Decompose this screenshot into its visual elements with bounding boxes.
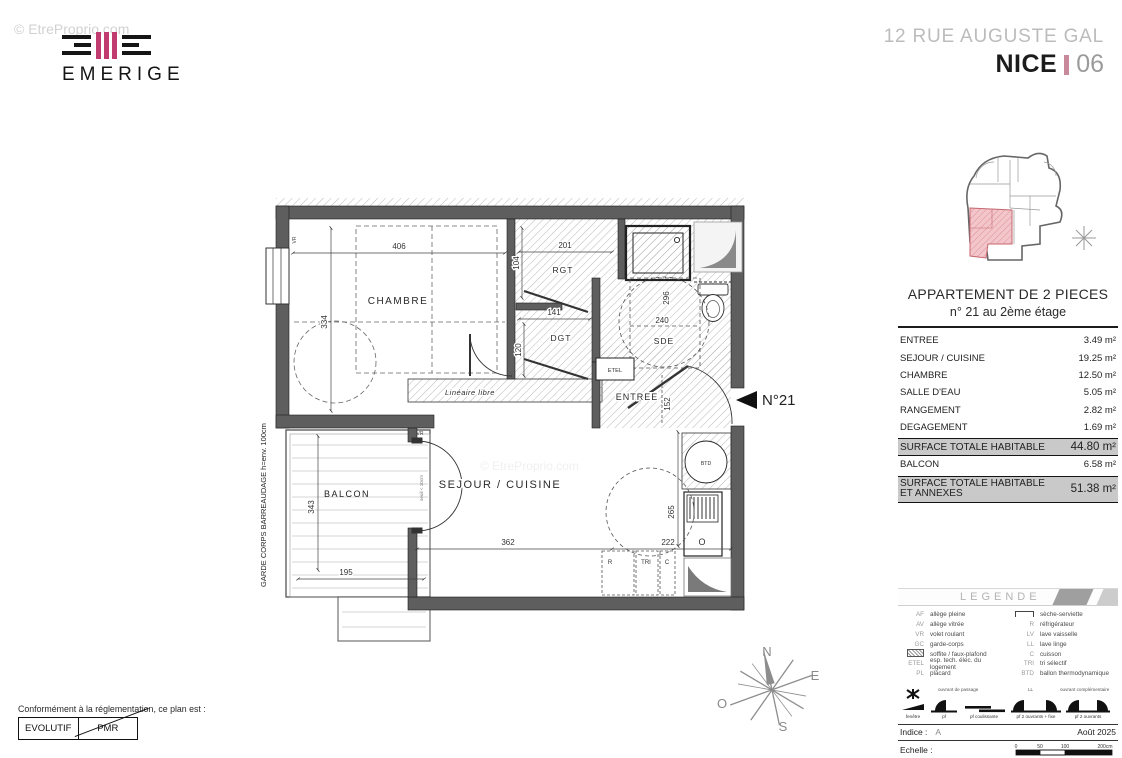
table-row: RANGEMENT2.82 m² [898,402,1118,419]
chambre-furniture [294,226,505,403]
legend-label: tri sélectif [1040,660,1067,667]
window-glyph-icon [900,689,926,713]
balcon-label: BALCON [324,489,370,499]
echelle-label: Echelle : [900,745,933,755]
room-area: 6.58 m² [1084,459,1116,470]
table-row: SALLE D'EAU5.05 m² [898,384,1118,401]
compass-rose: N E S O [717,642,821,734]
seuil-label: seuil < 10cm [419,475,424,501]
dim-label: 343 [307,500,316,514]
legend-item: ETELesp. tech. élec. du logement [898,659,1008,669]
dim-label: 104 [512,256,521,270]
door-glyph-icon [931,697,957,713]
room-area: 12.50 m² [1079,370,1117,381]
dim-label: 296 [662,291,671,305]
evolutif-cell: EVOLUTIF [19,718,78,739]
annotation: ouvrant de passage [938,687,978,692]
total-label: SURFACE TOTALE HABITABLE [900,442,1045,453]
total-label: SURFACE TOTALE HABITABLE ET ANNEXES [900,479,1050,500]
fridge-label: R [608,560,613,566]
sde-label: SDE [654,336,674,346]
pmr-cell-strikethrough: PMR [78,718,138,739]
btd-label: BTD [701,461,712,467]
entry-arrow-icon [736,391,757,409]
soffit-hatch-icon [898,649,930,659]
brand-name: EMERIGE [62,64,166,86]
compass-s: S [779,719,788,734]
legend-title: LEGENDE [960,591,1041,603]
dim-label: 201 [558,241,572,250]
legend-abbr: LV [1008,631,1040,638]
table-row: BALCON6.58 m² [898,456,1118,473]
legend-item: LVlave vaisselle [1008,630,1118,640]
legend-right-column: sèche-serviette Rréfrigérateur LVlave va… [1008,610,1118,679]
kitchen-fixtures: BTD O [684,441,731,596]
legend-abbr: TRI [1008,660,1040,667]
legend-label: placard [930,670,951,677]
emerige-logo-icon [62,30,166,60]
glyph-label: pf 2 ouvrants [1075,714,1102,719]
table-row: ENTREE3.49 m² [898,332,1118,349]
dim-label: 152 [663,397,672,411]
decor-parallelogram [1096,589,1118,605]
apartment-subtitle: n° 21 au 2ème étage [898,305,1118,328]
conformity-options: EVOLUTIF PMR [18,717,138,740]
towel-rail-icon [1008,611,1040,619]
exterior-insulation-hatch [276,198,744,206]
glyph-pf-coulissante: pf coulissante [960,697,1008,719]
lineaire-band-hatch [408,379,602,402]
room-area: 3.49 m² [1084,335,1116,346]
annotation: ouvrant complémentaire [1060,687,1109,692]
legend-item: TRItri sélectif [1008,659,1118,669]
legend-abbr: LL [1008,641,1040,648]
sejour-label: SEJOUR / CUISINE [439,479,561,491]
address-line: 12 RUE AUGUSTE GAL [884,26,1104,48]
legend-item: GCgarde-corps [898,639,1008,649]
legend-abbr: PL [898,670,930,677]
room-name: SEJOUR / CUISINE [900,353,985,364]
room-area: 19.25 m² [1079,353,1117,364]
dgt-label: DGT [551,333,572,343]
legend-abbr: C [1008,651,1040,658]
dim-label: 195 [339,568,353,577]
legend-label: cuisson [1040,651,1061,658]
indice-value: A [935,727,941,737]
glyph-pf-2ouvrants: pf 2 ouvrants [1064,697,1112,719]
room-name: BALCON [900,459,939,470]
glyph-label: pf coulissante [970,714,998,719]
legend-item: AVallège vitrée [898,620,1008,630]
table-row: DEGAGEMENT1.69 m² [898,419,1118,436]
separator-bar-icon [1064,55,1069,75]
conformity-intro: Conformément à la réglementation, ce pla… [18,704,206,714]
legend-item: Rréfrigérateur [1008,620,1118,630]
table-row: CHAMBRE12.50 m² [898,367,1118,384]
legend-label: allège pleine [930,611,965,618]
dim-label: 362 [501,538,515,547]
legend-label: ballon thermodynamique [1040,670,1109,677]
scale-tick: 0 [1015,744,1018,750]
total-habitable-row: SURFACE TOTALE HABITABLE44.80 m² [898,438,1118,456]
room-area: 2.82 m² [1084,405,1116,416]
apartment-summary-panel: APPARTEMENT DE 2 PIECES n° 21 au 2ème ét… [898,286,1118,503]
compass-e: E [811,668,820,683]
total-annexes-row: SURFACE TOTALE HABITABLE ET ANNEXES51.38… [898,476,1118,503]
glyph-pf: pf [928,697,960,719]
legend-door-symbols: ouvrant de passage LL ouvrant complément… [898,687,1118,719]
legend-scale-row: Echelle : 0 50 100 200cm [898,740,1118,758]
cuisson-label: O [698,537,705,547]
legend-panel: LEGENDE AFallège pleine AVallège vitrée … [898,588,1118,758]
scale-tick: 100 [1061,744,1070,750]
room-area: 5.05 m² [1084,387,1116,398]
shower [626,226,690,280]
room-area: 1.69 m² [1084,422,1116,433]
legend-label: esp. tech. élec. du logement [930,657,1008,671]
keyplan-star-icon [1072,226,1096,250]
scale-tick: 200cm [1097,744,1112,750]
legend-item: sèche-serviette [1008,610,1118,620]
total-value: 44.80 m² [1071,441,1116,453]
apartment-title: APPARTEMENT DE 2 PIECES [898,286,1118,302]
legend-label: sèche-serviette [1040,611,1083,618]
etel-box: ETEL [596,358,634,380]
scale-tick: 50 [1037,744,1043,750]
room-name: RANGEMENT [900,405,961,416]
legend-indice-row: Indice :A Août 2025 [898,724,1118,740]
legend-label: lave linge [1040,641,1067,648]
double-door-glyph-icon [1066,697,1110,713]
lineaire-label: Linéaire libre [445,388,495,397]
total-value: 51.38 m² [1071,483,1116,495]
legend-item: Ccuisson [1008,649,1118,659]
room-name: SALLE D'EAU [900,387,960,398]
compass-n: N [762,644,771,659]
indice-label: Indice : [900,727,927,737]
plan-date: Août 2025 [1077,727,1116,737]
annotation: LL [1028,687,1033,692]
vr-label: VR [417,431,424,437]
legend-left-column: AFallège pleine AVallège vitrée VRvolet … [898,610,1008,679]
department-number: 06 [1076,50,1104,79]
key-plan [967,153,1062,260]
dim-label: 240 [655,316,669,325]
legend-item: AFallège pleine [898,610,1008,620]
hob-label: C [665,560,670,566]
floor-plan: BALCON GARDE CORPS BARREAUDAGE h=env. 10… [259,198,796,641]
compass-o: O [717,696,727,711]
chambre-label: CHAMBRE [368,296,429,307]
dim-label: 334 [320,315,329,329]
vr-label: VR [292,236,298,243]
legend-abbr: VR [898,631,930,638]
garde-corps-label: GARDE CORPS BARREAUDAGE h=env. 100cm [259,423,268,587]
legend-abbr: R [1008,621,1040,628]
city-name: NICE [995,50,1057,79]
legend-abbr: ETEL [898,660,930,667]
legend-abbr: BTD [1008,670,1040,677]
legend-abbr: GC [898,641,930,648]
legend-header: LEGENDE [898,588,1118,606]
dim-label: 222 [661,538,675,547]
double-door-glyph-icon [1011,697,1061,713]
plan-sheet: { "watermark": "© EtreProprio.com", "log… [0,0,1122,748]
rgt-label: RGT [553,265,574,275]
balcony: BALCON GARDE CORPS BARREAUDAGE h=env. 10… [259,423,430,641]
room-name: CHAMBRE [900,370,948,381]
etel-label: ETEL [608,368,623,374]
corner-detail [694,222,742,272]
dim-label: 406 [392,242,406,251]
decor-parallelogram [1052,589,1093,605]
scale-bar: 0 50 100 200cm [1012,743,1116,757]
glyph-pf-2ouvrants-fixe: pf 2 ouvrants + fixe [1008,697,1064,719]
glyph-label: pf 2 ouvrants + fixe [1017,714,1056,719]
entree-label: ENTREE [616,392,659,402]
legend-abbr: AF [898,611,930,618]
sliding-door-glyph-icon [963,697,1005,713]
watermark: © EtreProprio.com © EtreProprio.com © Et… [14,21,579,473]
unit-marker: N°21 [736,391,796,409]
tri-label: TRI [641,560,651,566]
room-name: DEGAGEMENT [900,422,968,433]
legend-item: BTDballon thermodynamique [1008,669,1118,679]
glyph-fenetre: fenêtre [898,689,928,719]
legend-abbr: AV [898,621,930,628]
legend-item: VRvolet roulant [898,630,1008,640]
developer-logo: EMERIGE [62,30,166,86]
legend-label: volet roulant [930,631,964,638]
glyph-label: fenêtre [906,714,920,719]
legend-label: garde-corps [930,641,964,648]
legend-label: allège vitrée [930,621,964,628]
project-header: 12 RUE AUGUSTE GAL NICE 06 [884,26,1104,79]
watermark-text: © EtreProprio.com [480,459,579,473]
legend-item: LLlave linge [1008,639,1118,649]
table-row: SEJOUR / CUISINE19.25 m² [898,349,1118,366]
conformity-block: Conformément à la réglementation, ce pla… [18,704,206,740]
dim-label: 265 [667,505,676,519]
legend-label: lave vaisselle [1040,631,1077,638]
glyph-label: pf [942,714,946,719]
dim-label: 120 [514,343,523,357]
dim-label: 141 [547,308,561,317]
room-name: ENTREE [900,335,939,346]
unit-number: N°21 [762,392,796,409]
legend-label: réfrigérateur [1040,621,1074,628]
